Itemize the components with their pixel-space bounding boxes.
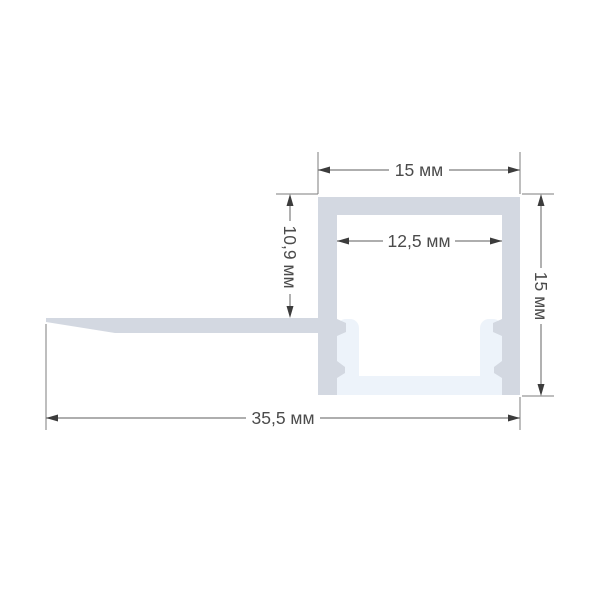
dim-inner-width: 12,5 мм <box>337 231 502 251</box>
arrowhead-left <box>337 238 349 245</box>
arrowhead-right <box>490 238 502 245</box>
drawing-canvas: 15 мм 12,5 мм 10,9 мм 15 мм 35,5 мм <box>0 0 600 600</box>
arrowhead-right <box>508 415 520 422</box>
top-wall <box>318 197 520 215</box>
dim-left-depth: 10,9 мм <box>276 194 318 318</box>
dim-right-height: 15 мм <box>522 194 554 396</box>
profile-cross-section-drawing: 15 мм 12,5 мм 10,9 мм 15 мм 35,5 мм <box>0 0 600 600</box>
dim-label-overall-width: 35,5 мм <box>252 408 315 428</box>
arrowhead-left <box>318 167 330 174</box>
diffuser <box>337 319 502 395</box>
dim-label-top-width: 15 мм <box>395 160 443 180</box>
arrowhead-up <box>538 194 545 206</box>
mounting-flange <box>46 318 318 333</box>
arrowhead-down <box>287 306 294 318</box>
arrowhead-down <box>538 384 545 396</box>
dim-label-right-height: 15 мм <box>531 272 551 320</box>
arrowhead-left <box>46 415 58 422</box>
dim-label-inner-width: 12,5 мм <box>388 231 451 251</box>
dim-top-width: 15 мм <box>318 152 520 194</box>
arrowhead-right <box>508 167 520 174</box>
dim-label-left-depth: 10,9 мм <box>280 226 300 289</box>
arrowhead-up <box>287 194 294 206</box>
diffuser-plate <box>337 376 502 395</box>
